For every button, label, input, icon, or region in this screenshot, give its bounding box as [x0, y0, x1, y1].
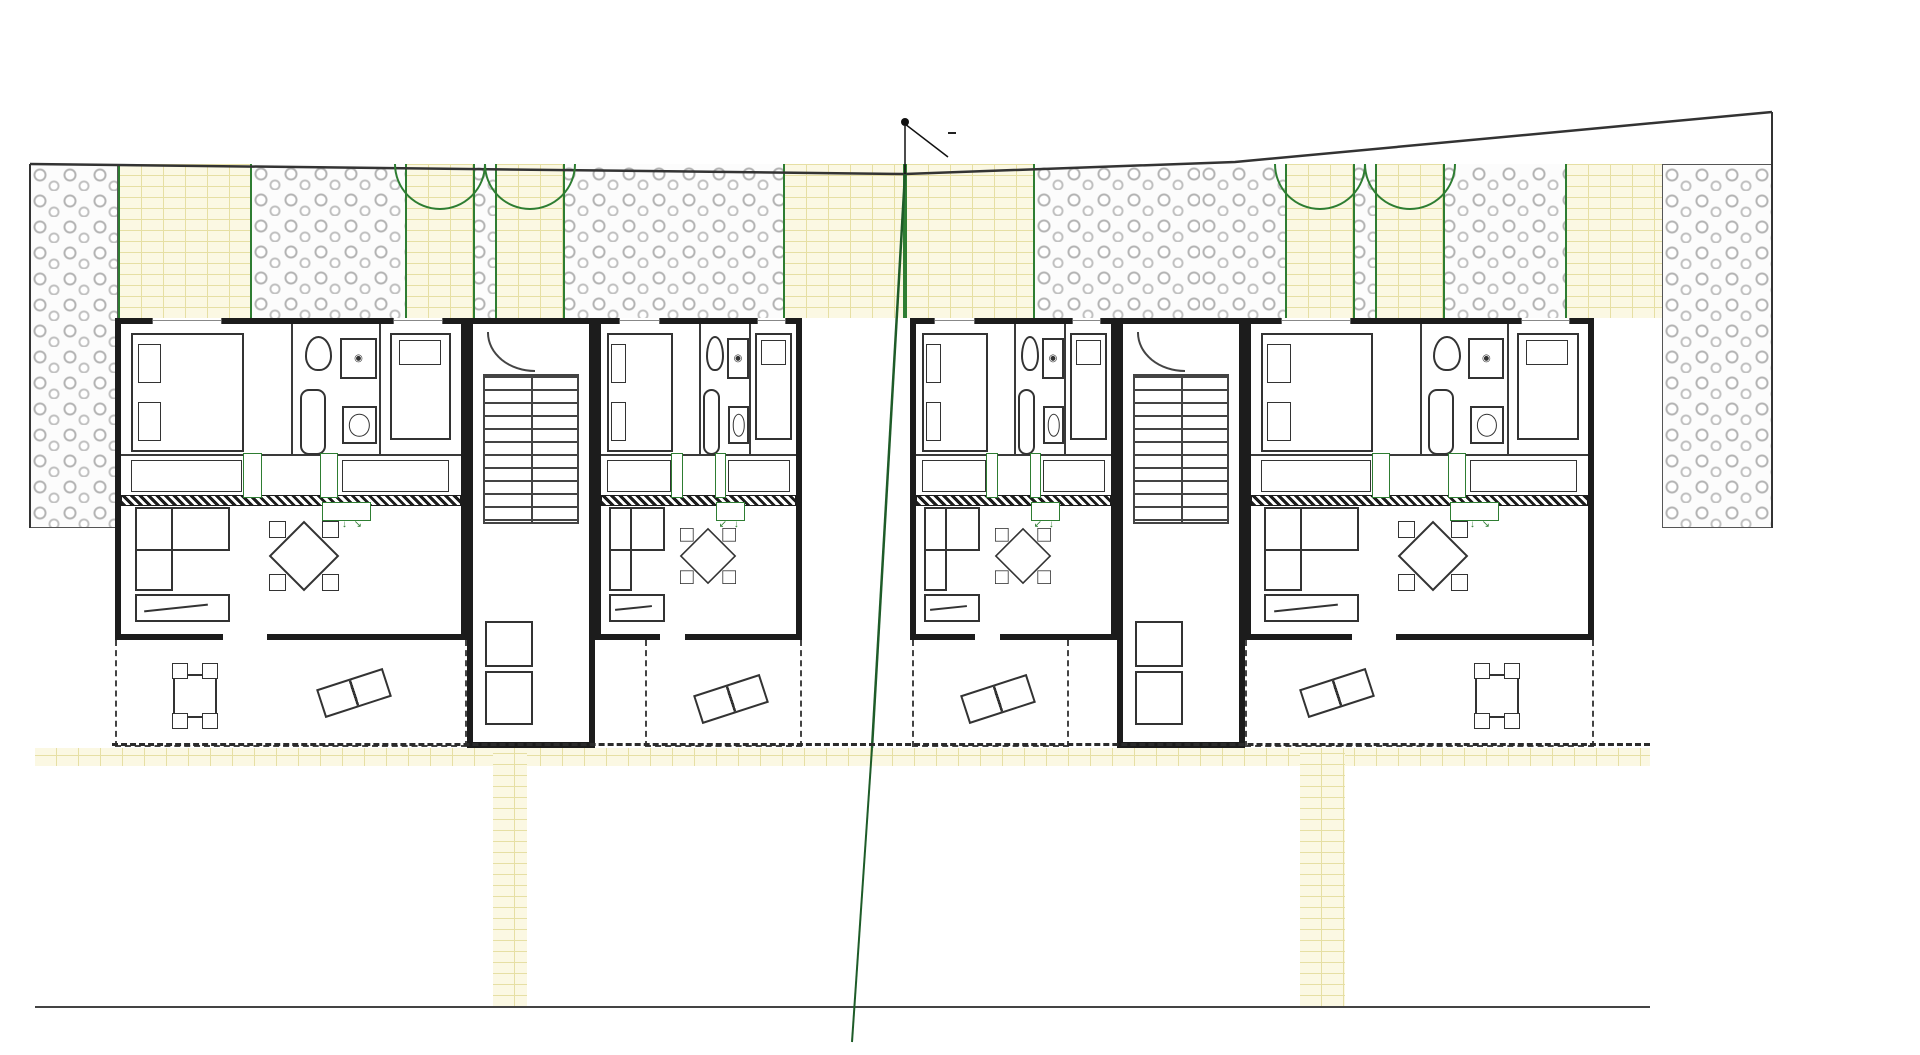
apartment-stan-1-3-objekt1: ↙ ↓ ↘ [595, 318, 802, 640]
ac-unit [986, 453, 997, 498]
interior-wall-hatched [601, 495, 796, 506]
toilet-icon [706, 336, 724, 371]
bed-icon [1517, 333, 1578, 439]
door-arc-icon [487, 332, 535, 372]
kitchen-counter-icon [924, 594, 981, 623]
garden-path-strip [1375, 164, 1445, 318]
terrace-door-gap [1352, 634, 1396, 640]
dining-table-icon [679, 527, 738, 586]
parking-walkway [35, 748, 1650, 766]
washing-machine-icon [342, 406, 377, 444]
ac-unit [1372, 453, 1390, 498]
terrace-boundary-dashed-line [112, 743, 1650, 746]
stairs-icon [1133, 374, 1228, 524]
staircase-objekt1 [467, 318, 595, 748]
interior-wall [699, 324, 701, 454]
washing-machine-icon [1043, 406, 1065, 444]
ac-unit [1031, 502, 1060, 521]
washing-machine-icon [1470, 406, 1504, 444]
staircase-label [1123, 554, 1239, 568]
lounge-chair-icon [316, 668, 392, 718]
wardrobe [131, 460, 242, 491]
storage-box [1135, 671, 1183, 725]
window-icon [757, 318, 786, 324]
garden-zone-terasa-s2-left [118, 164, 252, 318]
boundary-label [948, 132, 956, 134]
apartment-stan-2-4-objekt1: ↙ ↓ ↘ [115, 318, 467, 640]
window-icon [152, 318, 222, 324]
kitchen-counter-icon [135, 594, 231, 623]
window-icon [393, 318, 443, 324]
toilet-icon [1433, 336, 1461, 371]
toilet-icon [305, 336, 333, 371]
staircase-label [473, 554, 589, 568]
ac-unit [671, 453, 682, 498]
interior-wall [1420, 324, 1422, 454]
apartment-stan-1-3-objekt2: ↙ ↓ ↘ [1245, 318, 1594, 640]
wardrobe [728, 460, 790, 491]
bed-icon [607, 333, 673, 452]
kitchen-counter-icon [1264, 594, 1359, 623]
bathtub-icon [1018, 389, 1035, 455]
parking-gap [1300, 748, 1345, 1006]
wardrobe [1470, 460, 1576, 491]
interior-wall [916, 454, 1111, 456]
terrace-door-gap [223, 634, 267, 640]
shower-icon [340, 338, 376, 379]
parking-gap [493, 748, 527, 1006]
storage-box [1135, 621, 1183, 667]
lounge-chair-icon [960, 674, 1036, 724]
patio-table-icon [1468, 667, 1526, 725]
garden-zone-terasa-s1-center-left [783, 164, 905, 318]
window-icon [1521, 318, 1570, 324]
terrace-door-gap [660, 634, 685, 640]
storage-box [485, 671, 533, 725]
interior-wall [1064, 324, 1066, 454]
terrace-door-gap [975, 634, 1000, 640]
sofa-icon [1264, 507, 1359, 551]
lounge-chair-icon [693, 674, 769, 724]
interior-wall [121, 454, 461, 456]
parking-bottom-line [35, 1006, 1650, 1008]
ac-unit [1448, 453, 1466, 498]
interior-wall-hatched [916, 495, 1111, 506]
ac-unit [243, 453, 261, 498]
bed-icon [131, 333, 244, 452]
garden-path-strip [405, 164, 475, 318]
apartment-stan-2-4-objekt2: ↙ ↓ ↘ [910, 318, 1117, 640]
kitchen-counter-icon [609, 594, 666, 623]
bathtub-icon [300, 389, 326, 455]
ac-unit [1450, 502, 1499, 521]
garden-strip-right [1662, 164, 1772, 528]
stairs-icon [483, 374, 578, 524]
lounge-chair-icon [1299, 668, 1375, 718]
bed-icon [390, 333, 452, 439]
staircase-objekt2 [1117, 318, 1245, 748]
bathtub-icon [703, 389, 720, 455]
window-icon [619, 318, 660, 324]
window-icon [1281, 318, 1350, 324]
interior-wall [379, 324, 381, 454]
window-icon [934, 318, 975, 324]
bed-icon [1070, 333, 1107, 439]
shower-icon [1042, 338, 1065, 379]
dining-table-icon [1396, 519, 1470, 593]
terrace-stan13-objekt2 [1245, 640, 1594, 747]
wardrobe [342, 460, 449, 491]
sofa-icon [609, 507, 666, 551]
ac-unit [716, 502, 745, 521]
toilet-icon [1021, 336, 1039, 371]
terrace-stan13-objekt1 [645, 640, 802, 747]
sofa-icon [135, 507, 231, 551]
wardrobe [1261, 460, 1371, 491]
wardrobe [1043, 460, 1105, 491]
window-icon [1072, 318, 1101, 324]
interior-wall [291, 324, 293, 454]
interior-wall [601, 454, 796, 456]
bathtub-icon [1428, 389, 1454, 455]
terrace-stan24-objekt1 [115, 640, 467, 747]
ac-unit [322, 502, 372, 521]
site-floor-plan: ↙ ↓ ↘ [0, 0, 1920, 1055]
interior-wall [1507, 324, 1509, 454]
wardrobe [607, 460, 671, 491]
shower-icon [727, 338, 750, 379]
shower-icon [1468, 338, 1504, 379]
patio-table-icon [166, 667, 224, 725]
dining-table-icon [994, 527, 1053, 586]
ac-unit [715, 453, 726, 498]
ac-unit [320, 453, 338, 498]
garden-path-strip [1285, 164, 1355, 318]
wardrobe [922, 460, 986, 491]
garden-path-strip [495, 164, 565, 318]
bed-icon [1261, 333, 1373, 452]
interior-wall-hatched [121, 495, 461, 506]
interior-wall [1014, 324, 1016, 454]
washing-machine-icon [728, 406, 750, 444]
terrace-stan24-objekt2 [912, 640, 1069, 747]
interior-wall [749, 324, 751, 454]
door-arc-icon [1137, 332, 1185, 372]
garden-strip-left [30, 164, 118, 528]
garden-zone-terasa-s2-center-right [905, 164, 1035, 318]
bed-icon [755, 333, 792, 439]
interior-wall-hatched [1251, 495, 1588, 506]
bed-icon [922, 333, 988, 452]
ac-unit [1030, 453, 1041, 498]
sofa-icon [924, 507, 981, 551]
storage-box [485, 621, 533, 667]
garden-zone-vrt-s2-right [1035, 164, 1200, 318]
interior-wall [1251, 454, 1588, 456]
dining-table-icon [267, 519, 341, 593]
